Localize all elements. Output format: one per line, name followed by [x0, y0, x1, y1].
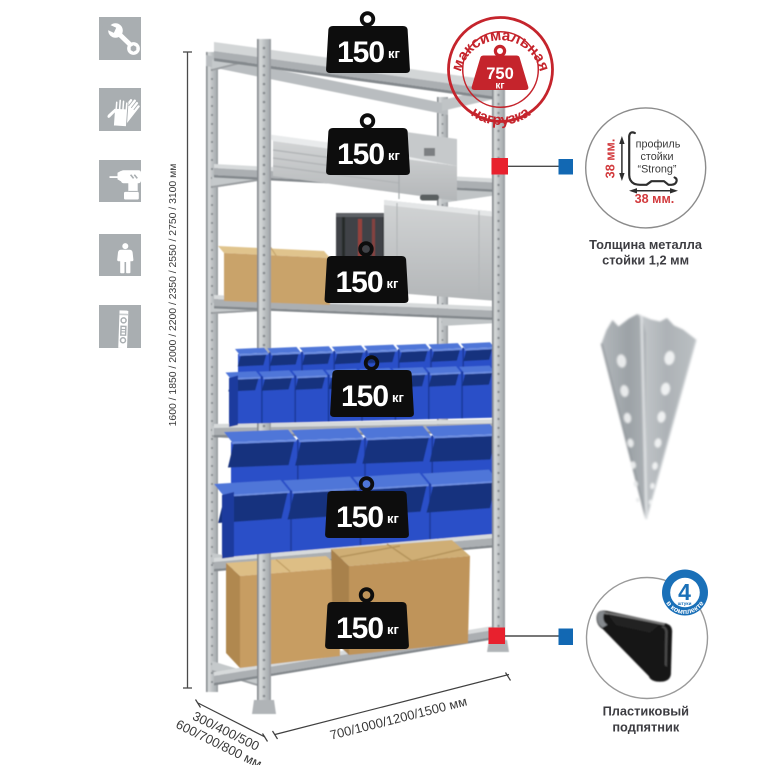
svg-text:кг: кг	[387, 622, 400, 637]
svg-text:700/1000/1200/1500 мм: 700/1000/1200/1500 мм	[328, 694, 468, 743]
svg-text:Пластиковый: Пластиковый	[603, 704, 689, 719]
svg-text:кг: кг	[388, 46, 401, 61]
svg-text:38 мм.: 38 мм.	[635, 192, 675, 206]
svg-text:150: 150	[341, 380, 388, 413]
svg-text:150: 150	[336, 501, 383, 534]
svg-text:кг: кг	[388, 148, 401, 163]
svg-text:штуки: штуки	[678, 601, 692, 606]
svg-text:“Strong”: “Strong”	[637, 164, 676, 176]
svg-text:Толщина металла: Толщина металла	[589, 237, 703, 252]
svg-text:38 мм.: 38 мм.	[604, 139, 618, 179]
svg-text:1600 / 1850 / 2000 / 2200 / 23: 1600 / 1850 / 2000 / 2200 / 2350 / 2550 …	[168, 164, 179, 427]
svg-text:150: 150	[335, 266, 382, 299]
svg-text:кг: кг	[392, 390, 405, 405]
svg-text:стойки: стойки	[640, 151, 673, 163]
svg-text:150: 150	[337, 138, 384, 171]
svg-text:стойки 1,2 мм: стойки 1,2 мм	[602, 253, 689, 268]
svg-text:150: 150	[336, 612, 383, 645]
svg-text:кг: кг	[387, 276, 400, 291]
svg-text:профиль: профиль	[636, 139, 681, 151]
svg-text:кг: кг	[495, 81, 504, 92]
svg-text:кг: кг	[387, 511, 400, 526]
svg-text:150: 150	[337, 36, 384, 69]
svg-text:подпятник: подпятник	[612, 720, 680, 735]
